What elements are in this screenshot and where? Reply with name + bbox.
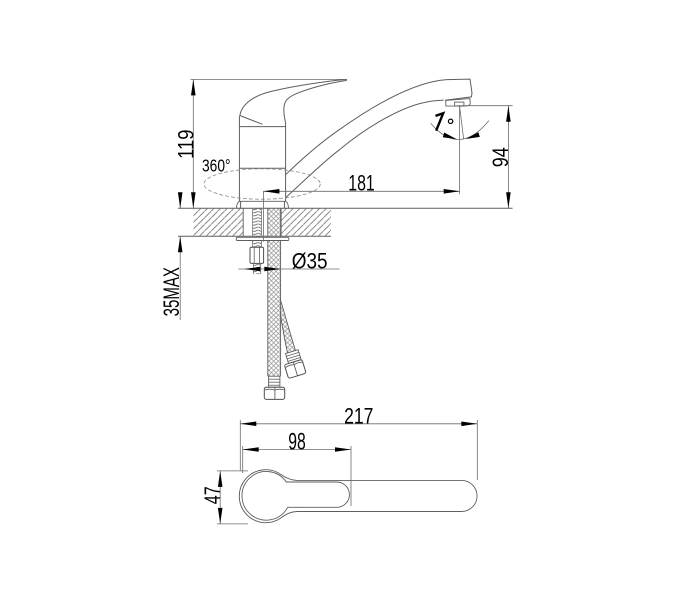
svg-text:360°: 360° xyxy=(202,156,231,176)
svg-text:Ø35: Ø35 xyxy=(292,249,328,274)
svg-text:47: 47 xyxy=(200,486,225,504)
svg-text:98: 98 xyxy=(288,428,306,455)
svg-text:119: 119 xyxy=(173,130,198,159)
svg-text:35MAX: 35MAX xyxy=(159,267,184,317)
svg-text:94: 94 xyxy=(488,147,513,167)
svg-text:217: 217 xyxy=(344,404,373,429)
svg-text:181: 181 xyxy=(348,170,375,195)
